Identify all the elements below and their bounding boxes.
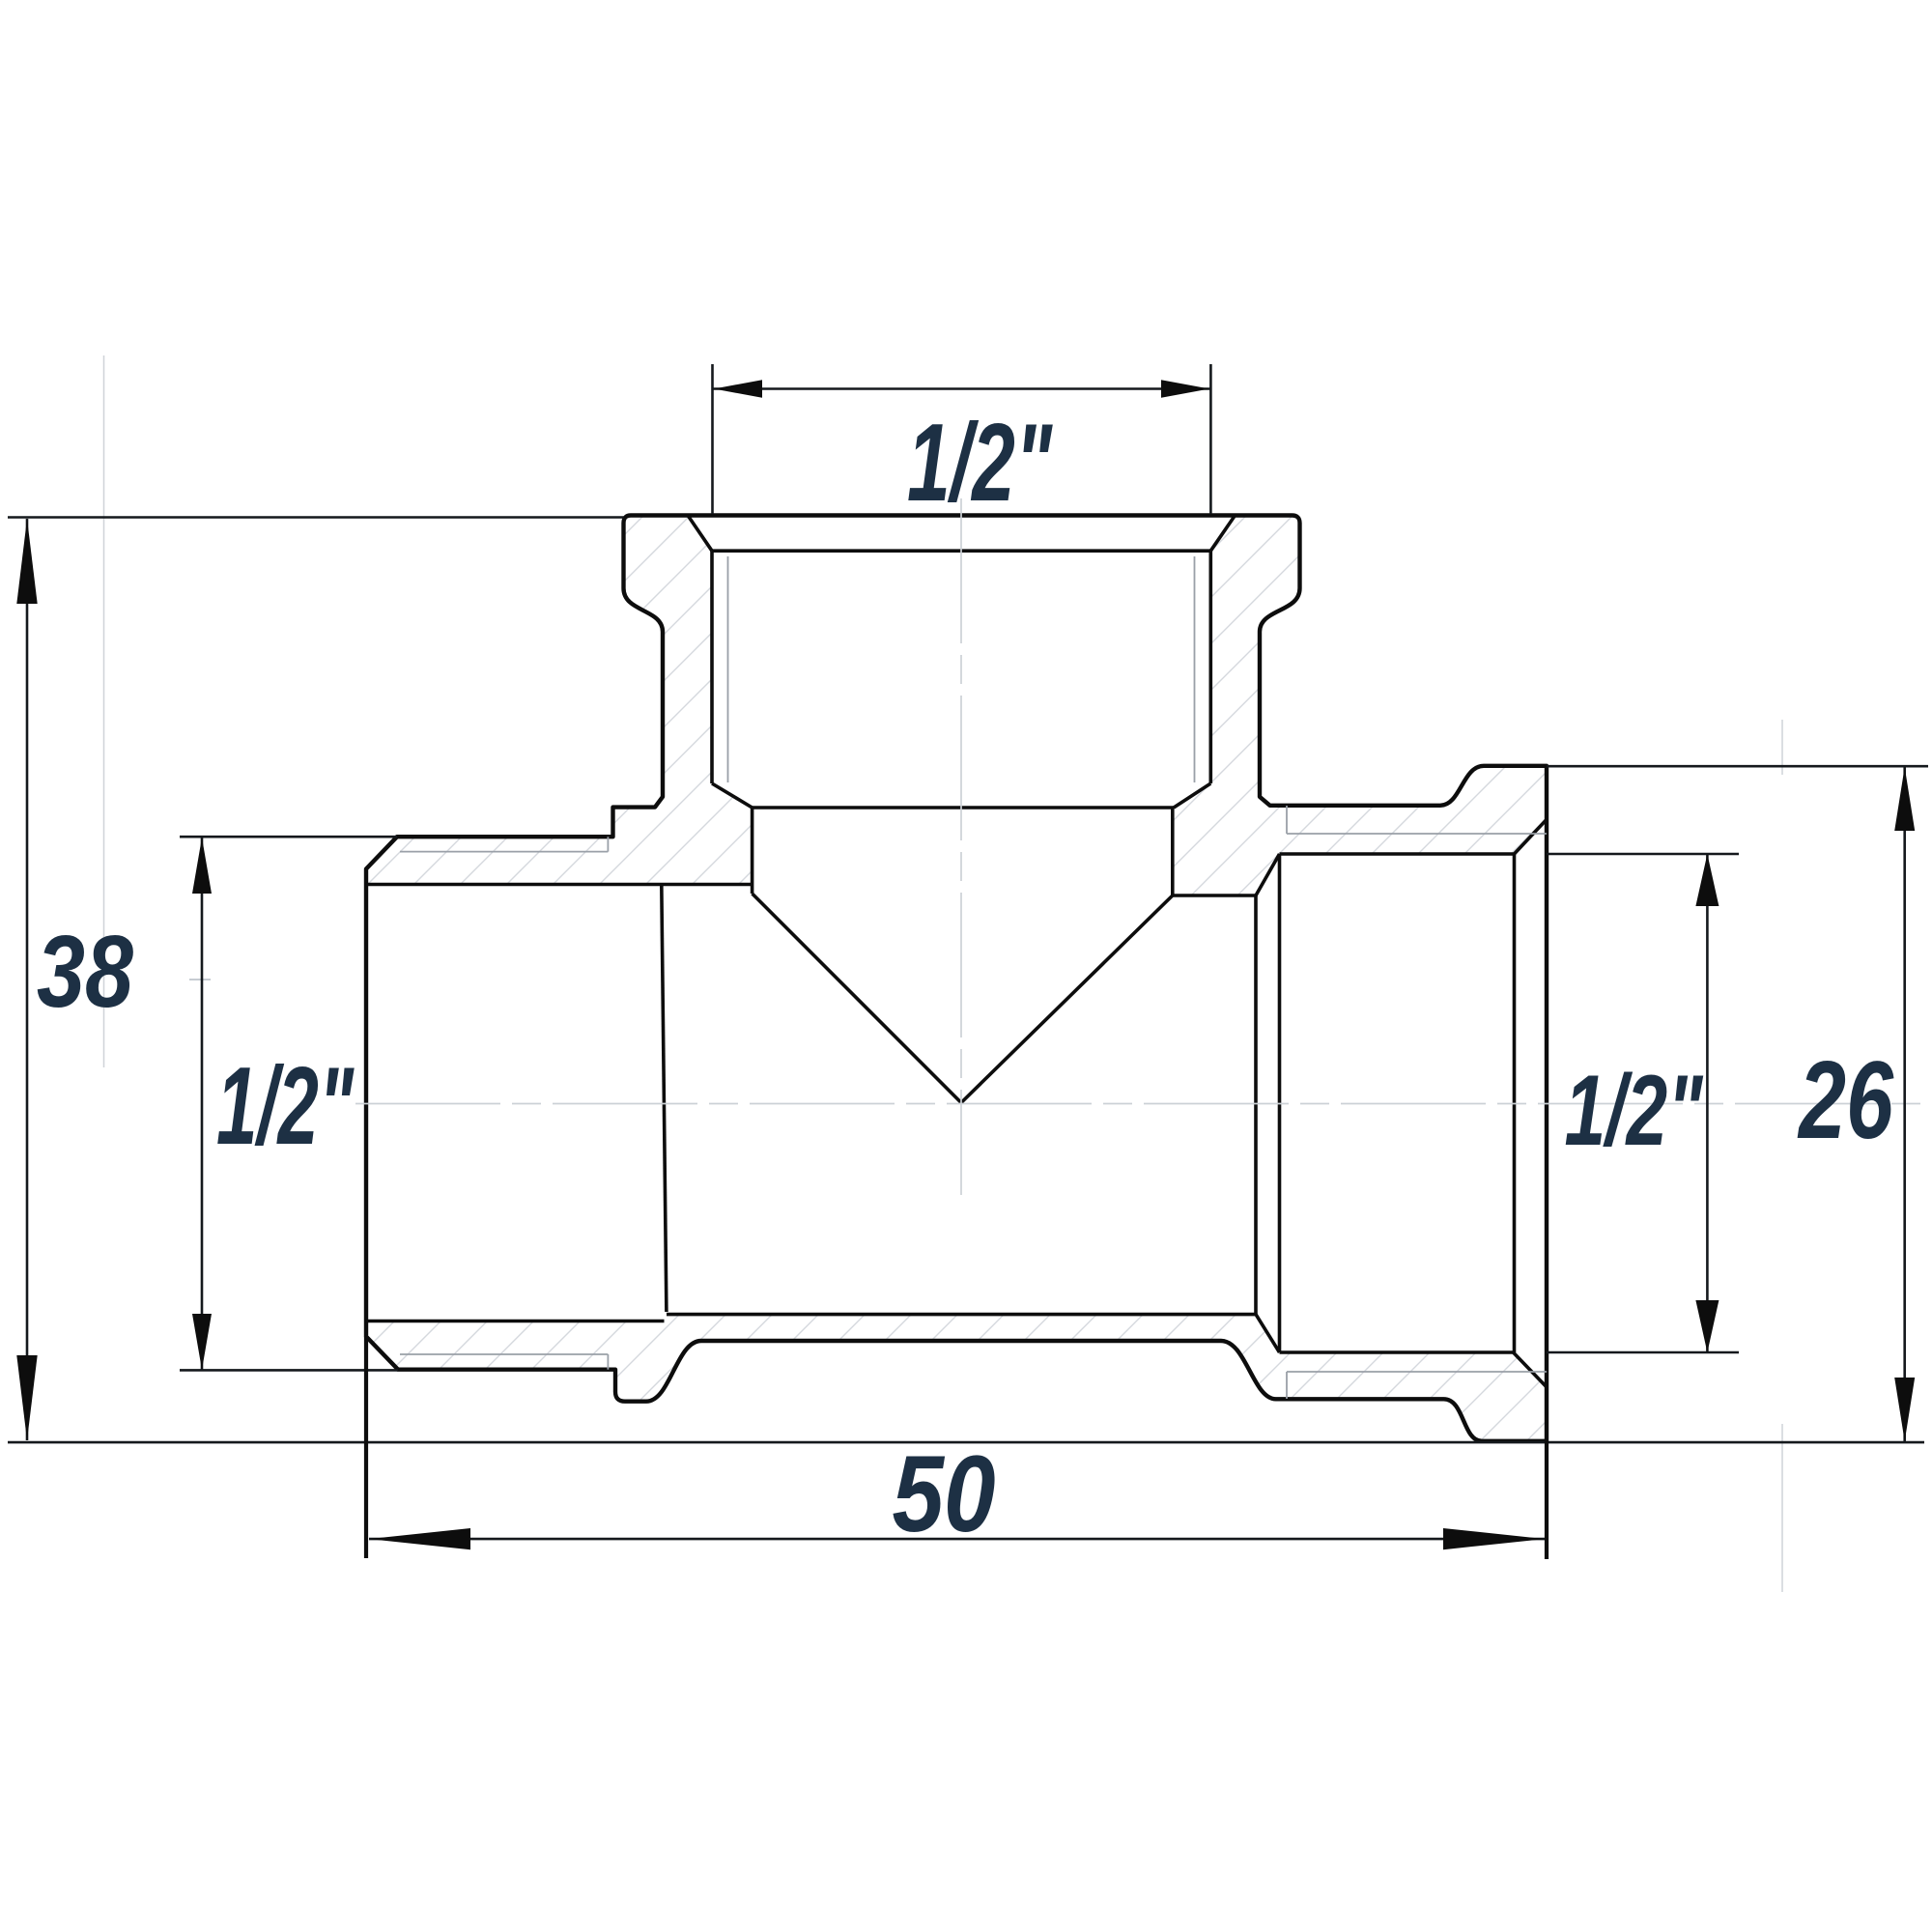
svg-text:38: 38	[37, 915, 133, 1029]
svg-text:26: 26	[1797, 1039, 1894, 1162]
svg-text:50: 50	[893, 1434, 996, 1554]
svg-text:1/2": 1/2"	[907, 402, 1053, 525]
svg-text:1/2": 1/2"	[216, 1045, 355, 1168]
svg-text:1/2": 1/2"	[1565, 1055, 1704, 1167]
